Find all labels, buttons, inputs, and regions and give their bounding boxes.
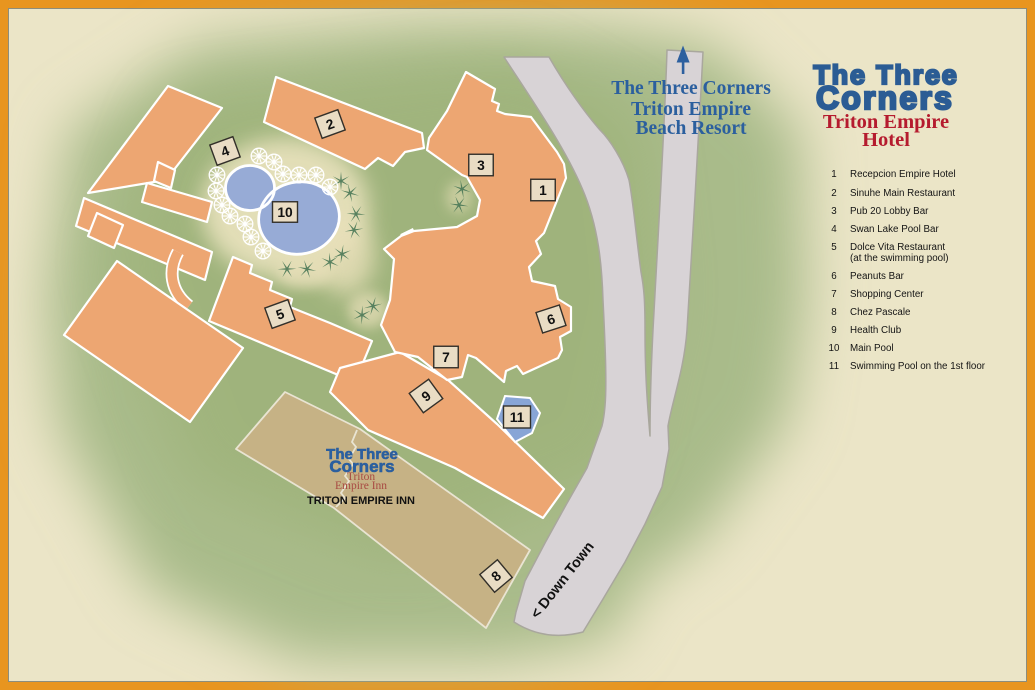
- svg-text:7: 7: [831, 289, 836, 300]
- svg-text:7: 7: [442, 350, 450, 365]
- svg-text:Triton Empire: Triton Empire: [631, 99, 751, 120]
- svg-text:Chez Pascale: Chez Pascale: [850, 307, 911, 318]
- svg-text:1: 1: [831, 169, 836, 180]
- svg-text:Main Pool: Main Pool: [850, 343, 894, 354]
- svg-text:6: 6: [831, 271, 837, 282]
- svg-text:5: 5: [831, 242, 837, 253]
- svg-text:Empire Inn: Empire Inn: [335, 480, 387, 492]
- svg-text:Pub 20 Lobby Bar: Pub 20 Lobby Bar: [850, 206, 929, 217]
- svg-text:Swan Lake Pool Bar: Swan Lake Pool Bar: [850, 224, 940, 235]
- svg-text:3: 3: [477, 158, 485, 173]
- svg-text:9: 9: [831, 325, 836, 336]
- svg-text:4: 4: [831, 224, 837, 235]
- svg-text:11: 11: [829, 361, 839, 372]
- svg-text:2: 2: [831, 188, 836, 199]
- svg-text:1: 1: [539, 183, 547, 198]
- svg-text:TRITON EMPIRE INN: TRITON EMPIRE INN: [307, 495, 415, 507]
- svg-text:Shopping Center: Shopping Center: [850, 289, 924, 300]
- svg-text:10: 10: [277, 205, 293, 220]
- svg-text:Beach Resort: Beach Resort: [635, 118, 747, 139]
- svg-text:3: 3: [831, 206, 837, 217]
- svg-text:The Three Corners: The Three Corners: [611, 78, 771, 99]
- svg-text:11: 11: [510, 410, 525, 425]
- svg-text:Peanuts Bar: Peanuts Bar: [850, 271, 905, 282]
- svg-text:Sinuhe Main Restaurant: Sinuhe Main Restaurant: [850, 188, 955, 199]
- svg-text:Health Club: Health Club: [850, 325, 902, 336]
- svg-text:Swimming Pool on the 1st floor: Swimming Pool on the 1st floor: [850, 361, 986, 372]
- svg-text:Dolce Vita Restaurant: Dolce Vita Restaurant: [850, 242, 945, 253]
- svg-text:(at the swimming pool): (at the swimming pool): [850, 253, 949, 264]
- svg-text:10: 10: [829, 343, 840, 354]
- svg-text:Recepcion Empire Hotel: Recepcion Empire Hotel: [850, 169, 956, 180]
- svg-text:8: 8: [831, 307, 837, 318]
- svg-text:Hotel: Hotel: [862, 129, 910, 151]
